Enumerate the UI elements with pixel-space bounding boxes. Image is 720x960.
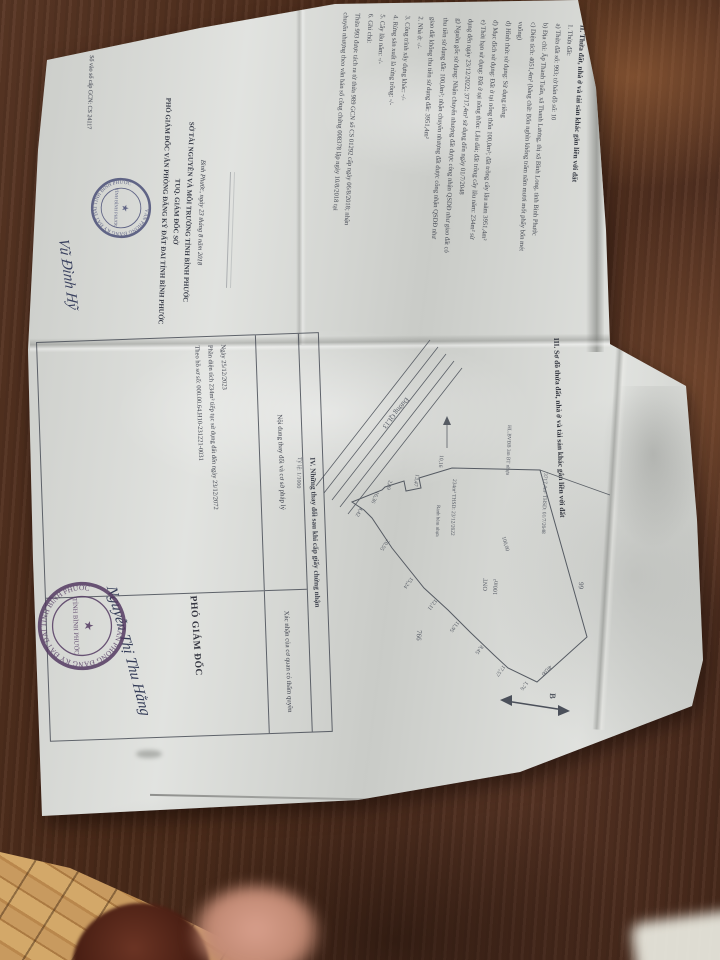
certificate-paper: Số vào sổ cấp GCN: CS 24117 II. Thửa đất… bbox=[0, 0, 720, 960]
dim-label: 12,11 bbox=[426, 598, 438, 611]
stamp-star-icon: ★ bbox=[120, 204, 130, 212]
dim-label: 40,00 bbox=[540, 664, 553, 677]
dim-label: 8,45 bbox=[473, 644, 484, 655]
parcel-area-label: 100m² bbox=[492, 579, 500, 595]
dim-label: 100,00 bbox=[500, 536, 510, 552]
parcel-use-label: ONT bbox=[482, 578, 489, 591]
cadastral-map: Đường QL13 HL.BVĐB 3m BT nhựa 4,42 16,36… bbox=[288, 333, 712, 747]
area2-label: 234m² THSD: 23/12/2022 bbox=[449, 479, 457, 536]
dim-label: 11,95 bbox=[448, 620, 460, 633]
signer-name: Vũ Đình Hỹ bbox=[54, 238, 81, 311]
paper-crease bbox=[226, 172, 235, 288]
paper-crease bbox=[586, 0, 604, 352]
dim-label: 15,24 bbox=[402, 576, 415, 590]
north-label: B bbox=[548, 693, 558, 699]
official-seal-stamp: VĂN PHÒNG ĐĂNG KÝ ĐẤT ĐAI TỈNH BÌNH PHƯỚ… bbox=[36, 580, 128, 672]
paper-crease bbox=[296, 0, 306, 345]
neighbor-parcel-number: 99 bbox=[577, 582, 585, 590]
boundary-label: Ranh hẻm nhựa bbox=[434, 505, 440, 538]
signature-handwriting: Vũ Đình Hỹ bbox=[56, 238, 77, 343]
dim-label: 10,16 bbox=[437, 455, 444, 468]
dim-label: 20,55 bbox=[378, 538, 390, 552]
section2-land-details: II. Thửa đất, nhà ở và tài sản khác gắn … bbox=[321, 12, 588, 343]
section4-changes-table: IV. Những thay đổi sau khi cấp giấy chứn… bbox=[36, 332, 333, 742]
stamp-center-text: TỈNH BÌNH PHƯỚC bbox=[113, 188, 119, 227]
official-seal-stamp: VĂN PHÒNG ĐĂNG KÝ ĐẤT ĐAI TỈNH BÌNH PHƯỚ… bbox=[86, 176, 156, 240]
north-arrow-icon bbox=[558, 705, 570, 716]
table-body-row: Ngày 25/12/2023Phần diện tích 234m² tiếp… bbox=[37, 335, 269, 740]
authority-lines: SỞ TÀI NGUYÊN VÀ MÔI TRƯỜNG TỈNH BÌNH PH… bbox=[153, 82, 198, 341]
alley-label: HL.BVĐB 3m BT nhựa bbox=[504, 425, 512, 476]
authority-block: Bình Phước, ngày 23 tháng 8 năm 2018 SỞ … bbox=[153, 82, 209, 341]
change-entry-cell: Ngày 25/12/2023Phần diện tích 234m² tiếp… bbox=[37, 335, 264, 599]
dim-label: 13,47 bbox=[412, 474, 420, 487]
paper-shadow: Số vào sổ cấp GCN: CS 24117 II. Thửa đất… bbox=[0, 0, 720, 960]
ink-smudge bbox=[150, 794, 450, 802]
registry-number: Số vào sổ cấp GCN: CS 24117 bbox=[84, 55, 94, 177]
photo-scene: Số vào sổ cấp GCN: CS 24117 II. Thửa đất… bbox=[0, 0, 720, 960]
ink-smudge bbox=[136, 750, 162, 758]
table-grid: IV. Những thay đổi sau khi cấp giấy chứn… bbox=[36, 332, 333, 742]
area1-label: 3717,4m² THSD: 01/7/2048 bbox=[540, 473, 548, 534]
neighbor-parcel-number: 766 bbox=[415, 630, 423, 641]
column-header-confirmation: Xác nhận của cơ quan có thẩm quyền bbox=[265, 590, 312, 733]
stamp-center-text: TỈNH BÌNH PHƯỚC bbox=[71, 598, 81, 655]
column-header-content: Nội dung thay đổi và cơ sở pháp lý bbox=[256, 334, 307, 592]
dim-label: 17,57 bbox=[494, 664, 507, 678]
stamp-star-icon: ★ bbox=[82, 620, 96, 631]
dim-label: 16,36 bbox=[369, 490, 379, 504]
north-arrow-icon bbox=[500, 695, 512, 706]
dim-label: 1,76 bbox=[518, 680, 529, 691]
dim-label: 4,42 bbox=[354, 506, 364, 518]
arrow-head-icon bbox=[443, 416, 451, 425]
dim-label: 2,09 bbox=[385, 479, 393, 490]
